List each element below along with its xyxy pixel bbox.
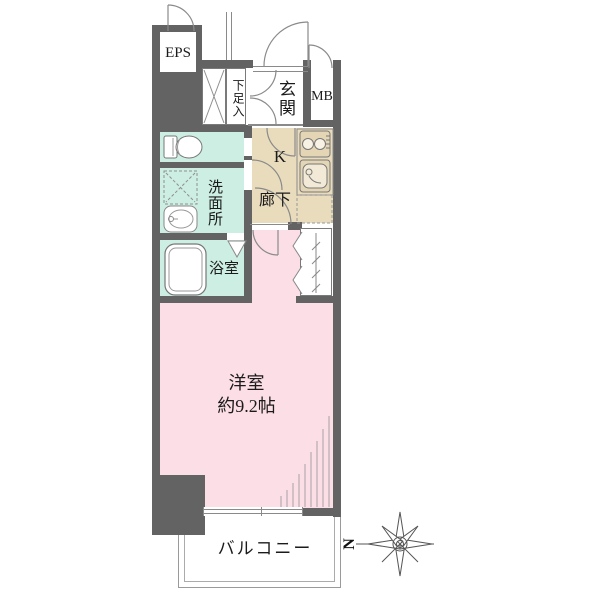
label-hallway: 廊下 [252, 191, 298, 211]
meter-box-door-arc [309, 45, 332, 68]
label-washroom: 洗面所 [203, 174, 223, 232]
closet-folding-door [293, 232, 302, 294]
eps-door-arc [168, 5, 194, 31]
sink-basin [303, 164, 327, 188]
floor-plan: EPS 下足入 玄関 MB K 廊下 洗面所 浴室 洋室 約9.2帖 バルコニー… [0, 0, 600, 600]
closet-hanger-pipe [312, 233, 320, 293]
plan-linework [0, 0, 600, 600]
shoe-cabinet-door-arc [250, 98, 276, 124]
entrance-door-arc [264, 22, 308, 66]
label-north: N [340, 533, 362, 555]
duct-x-mark [204, 70, 224, 123]
label-balcony: バルコニー [200, 538, 330, 559]
label-main-room-size: 約9.2帖 [160, 395, 333, 418]
refrigerator-space [297, 195, 332, 223]
window-ray-lines [281, 416, 329, 507]
compass-rose [356, 512, 434, 576]
label-main-room-name: 洋室 [160, 372, 333, 395]
stove-burner [303, 139, 314, 150]
kitchen-counter [297, 129, 333, 195]
room-door-arc [253, 230, 278, 255]
stove-burner [315, 139, 326, 150]
shoe-cabinet-door-arc [250, 70, 276, 96]
wash-basin [164, 206, 197, 232]
label-eps: EPS [156, 44, 200, 63]
toilet-fixture [164, 136, 202, 158]
label-meter-box: MB [305, 88, 339, 106]
label-main-room: 洋室 約9.2帖 [160, 372, 333, 417]
label-bathroom: 浴室 [204, 260, 244, 279]
bathroom-folding-door [228, 241, 246, 257]
washer-pan [164, 171, 197, 204]
label-entrance: 玄関 [274, 76, 296, 122]
label-shoe-storage: 下足入 [228, 73, 245, 123]
label-kitchen: K [268, 146, 292, 167]
bathtub [165, 244, 206, 295]
